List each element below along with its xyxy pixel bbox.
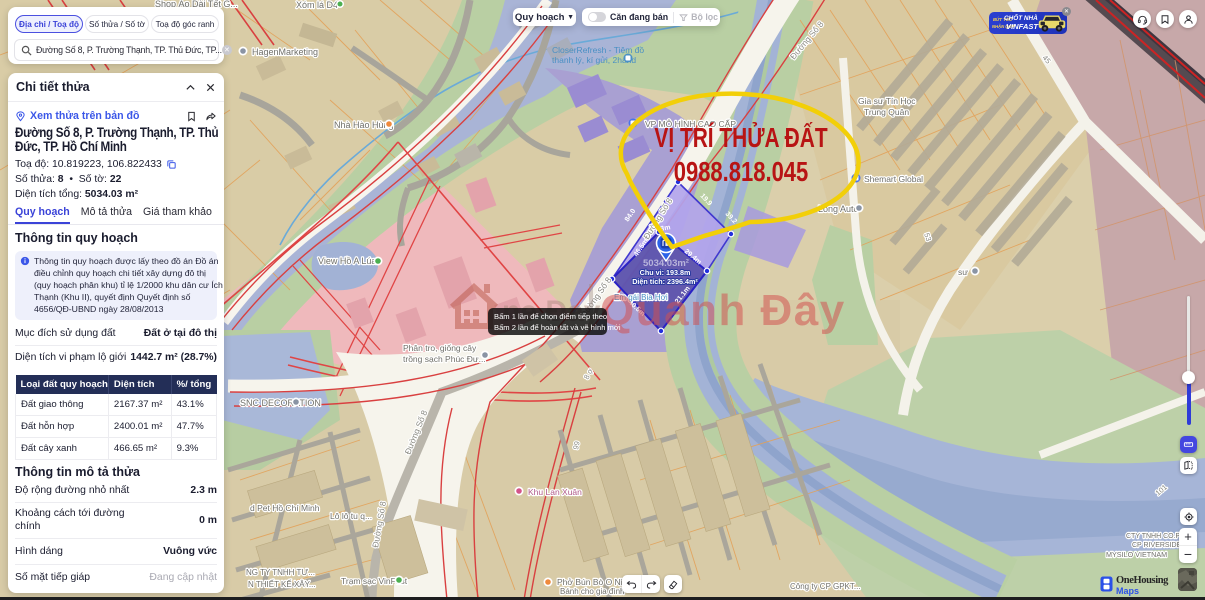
- svg-text:Diện tích: 2396.4m²: Diện tích: 2396.4m²: [632, 277, 698, 286]
- svg-text:0988.818.045: 0988.818.045: [674, 157, 809, 188]
- svg-text:VỊ TRÍ THỬA ĐẤT: VỊ TRÍ THỬA ĐẤT: [654, 121, 827, 154]
- svg-text:Quanh Đây: Quanh Đây: [600, 286, 846, 335]
- svg-text:CloserRefresh - Tiệm đồ: CloserRefresh - Tiệm đồ: [552, 45, 644, 55]
- svg-text:MYSILO VIETNAM: MYSILO VIETNAM: [1106, 550, 1167, 559]
- svg-text:Lô lô tu q...: Lô lô tu q...: [330, 511, 372, 521]
- svg-text:SNC DECORATION: SNC DECORATION: [240, 398, 321, 408]
- svg-text:N THIẾT KẾ XÂY...: N THIẾT KẾ XÂY...: [248, 579, 316, 589]
- svg-text:Phân tro, giống cây: Phân tro, giống cây: [403, 343, 477, 353]
- svg-text:View Hồ A Lúa: View Hồ A Lúa: [318, 256, 376, 266]
- svg-text:Gia sư Tín Học: Gia sư Tín Học: [858, 96, 916, 106]
- svg-text:Khu Lan Xuân: Khu Lan Xuân: [528, 487, 582, 497]
- svg-text:Trung Quân: Trung Quân: [864, 107, 909, 117]
- svg-text:NG TY TNHH TƯ...: NG TY TNHH TƯ...: [246, 568, 315, 577]
- svg-text:Xóm lá D4: Xóm lá D4: [296, 0, 338, 10]
- svg-text:sư: sư: [958, 267, 968, 277]
- svg-text:d Pet Hồ Chí Minh: d Pet Hồ Chí Minh: [250, 503, 320, 513]
- svg-text:thanh lý, kí gửi, 2hand: thanh lý, kí gửi, 2hand: [552, 55, 636, 65]
- svg-text:Bánh cho gia đình: Bánh cho gia đình: [560, 587, 625, 596]
- svg-text:trồng sạch Phúc Đư...: trồng sạch Phúc Đư...: [403, 354, 486, 364]
- svg-text:Shemart Global: Shemart Global: [864, 174, 923, 184]
- svg-text:HagenMarketing: HagenMarketing: [252, 47, 318, 57]
- svg-text:Công ty CP GPKT...: Công ty CP GPKT...: [790, 582, 861, 591]
- svg-text:Chu vi: 193.8m: Chu vi: 193.8m: [640, 268, 691, 277]
